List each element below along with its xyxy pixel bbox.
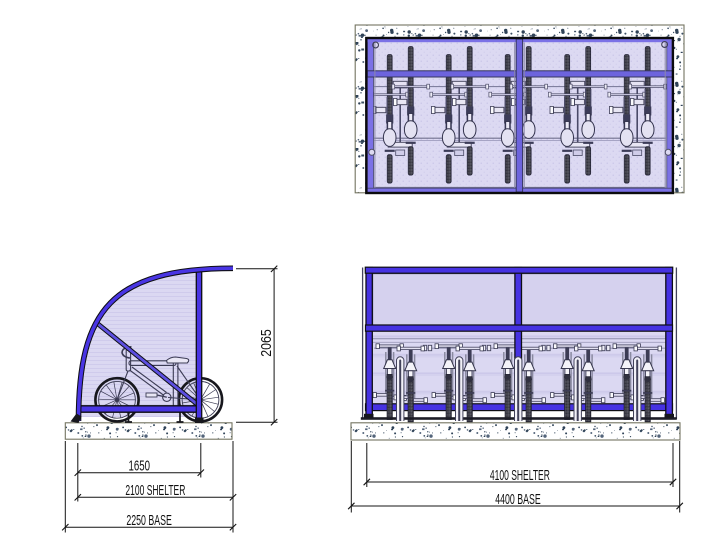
- svg-text:4100 SHELTER: 4100 SHELTER: [490, 467, 550, 484]
- svg-text:1650: 1650: [129, 458, 151, 475]
- svg-text:2065: 2065: [258, 329, 275, 357]
- svg-text:2100 SHELTER: 2100 SHELTER: [125, 482, 185, 499]
- svg-text:2250 BASE: 2250 BASE: [126, 512, 172, 529]
- svg-text:4400 BASE: 4400 BASE: [495, 491, 541, 508]
